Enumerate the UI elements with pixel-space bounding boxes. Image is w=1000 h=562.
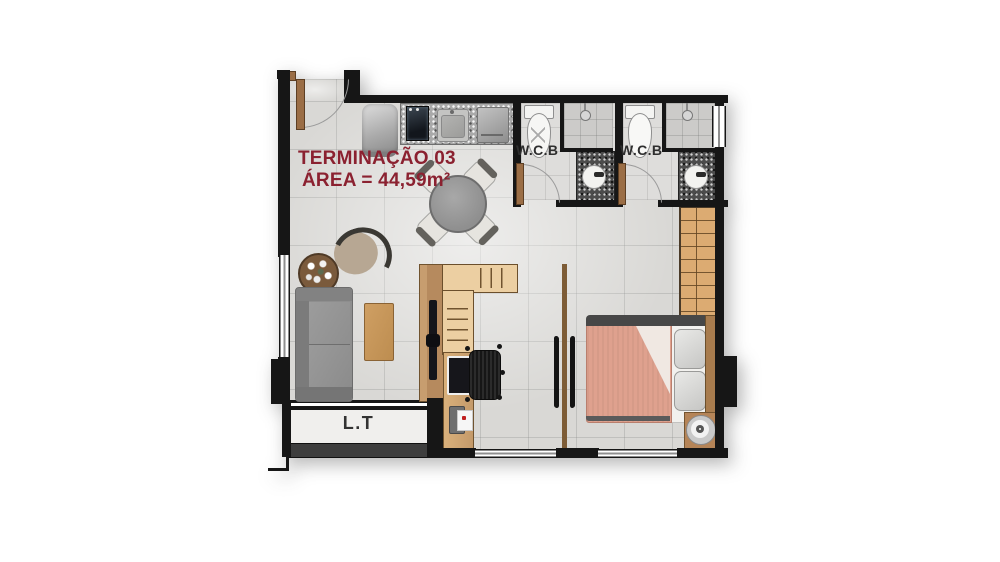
bedroom-window [598,449,679,458]
wall-bottom-3 [677,448,728,458]
shelving-unit-side [442,290,474,355]
chair-caster [497,344,502,349]
coffee-table [364,303,394,361]
apartment-floorplan: L.T [0,0,1000,562]
cooktop-knob [416,108,419,111]
floorplan-page: L.T [0,0,1000,562]
entry-door-leaf [296,79,305,130]
bathroom-sink [684,165,708,189]
printer-paper-mark [462,416,466,420]
bathroom1-door-leaf [516,163,524,205]
wall-bottom-2 [556,448,599,458]
wall-left-upper [278,70,290,257]
cooktop [406,106,429,141]
kitchen-appliance-handle [481,134,503,136]
printer-paper [457,410,473,431]
bathroom-sink [582,165,606,189]
cooktop-knob [409,108,412,111]
chair-armrest [500,370,505,375]
double-bed [586,315,714,421]
fan-hub-dot [699,428,701,430]
sofa [295,287,353,402]
chair-caster [497,395,502,400]
sofa-armrest [296,387,352,401]
office-window [475,449,558,458]
bathroom2-window [712,106,726,147]
bed-foot-band [586,416,670,421]
bed-top-band [586,315,707,326]
unit-area: ÁREA = 44,59m² [302,170,450,192]
bathroom1-label: W.C.B [516,142,570,158]
sofa-armrest [296,288,352,301]
wall-top-main [352,95,728,103]
wall-left-lower [282,401,291,457]
sliding-door-leaf [554,336,559,409]
bed-pillow [674,371,706,411]
bed-pillow [674,329,706,369]
chair-caster [465,397,470,402]
sofa-backrest [296,288,309,401]
kitchen-appliance [477,107,509,143]
shelving-unit-top [442,264,518,293]
sliding-door-leaf [570,336,575,409]
lt-label: L.T [290,413,427,434]
bathroom-faucet [594,172,604,177]
sliding-door-track [562,264,567,458]
bathroom2-label: W.C.B [620,142,674,158]
wall-lt-right [427,398,443,458]
kitchen-faucet [450,110,454,114]
kitchen-sink-basin [441,115,465,138]
living-room-window [279,255,290,359]
shower-head [682,110,693,121]
sofa-cushion [309,345,350,387]
pillar-left [271,359,290,404]
shelf-dividers [471,268,511,288]
tv-stand [426,334,440,347]
sofa-cushion [309,302,350,345]
lt-parapet [288,443,431,458]
wall-bottom-1 [443,448,476,458]
shower1-floor [564,103,613,148]
shower-head [580,110,591,121]
drain-line-h [268,468,289,471]
unit-title: TERMINAÇÃO 03 [298,148,456,170]
shelf-dividers [447,299,468,347]
bathroom2-door-leaf [618,163,626,205]
wardrobe [679,206,718,326]
wall-bathroom2-front [658,200,728,207]
office-chair [469,350,501,400]
wall-bathroom1-front [556,200,623,207]
pillar-right [722,356,737,407]
chair-caster [465,346,470,351]
bathroom-faucet [696,172,706,177]
